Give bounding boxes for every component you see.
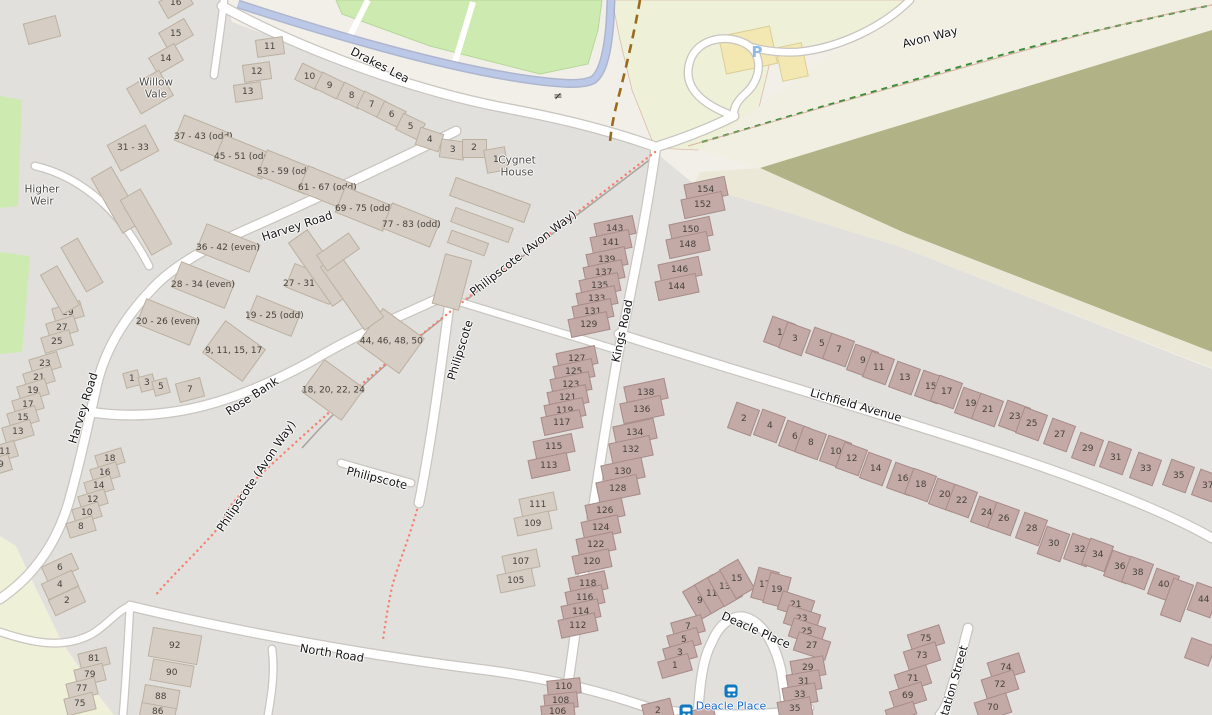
street-label: Drakes Lea <box>348 44 411 86</box>
street-label: Philipscote <box>444 318 476 381</box>
street-label: Avon Way <box>901 23 959 50</box>
map-canvas[interactable]: 1615141112131098765432131 - 3337 - 43 (o… <box>0 0 1212 715</box>
street-label: Rose Bank <box>223 374 281 418</box>
street-label: Station Street <box>935 644 970 715</box>
street-label: Deacle Place <box>719 609 792 652</box>
parking-icon: P <box>752 43 763 61</box>
street-label: Philipscote <box>345 464 409 493</box>
poi-label: Higher Weir <box>25 184 60 208</box>
street-label: Harvey Road <box>66 371 101 446</box>
poi-label: Cygnet House <box>498 155 535 179</box>
bus-stop-icon[interactable] <box>680 705 693 715</box>
street-label: Lichfield Avenue <box>809 385 904 424</box>
weir-icon: ≠ <box>553 90 562 103</box>
street-label: Harvey Road <box>260 208 334 244</box>
labels-layer: Drakes LeaAvon WayHarvey RoadHarvey Road… <box>0 0 1212 715</box>
street-label: Philipscote (Avon Way) <box>467 207 579 299</box>
street-label: Philipscote (Avon Way) <box>214 418 299 535</box>
bus-stop-icon[interactable] <box>725 685 738 698</box>
poi-label: Willow Vale <box>139 77 173 101</box>
bus-stop-label: Deacle Place <box>696 700 767 713</box>
street-label: North Road <box>299 641 365 665</box>
street-label: Kings Road <box>609 298 636 363</box>
